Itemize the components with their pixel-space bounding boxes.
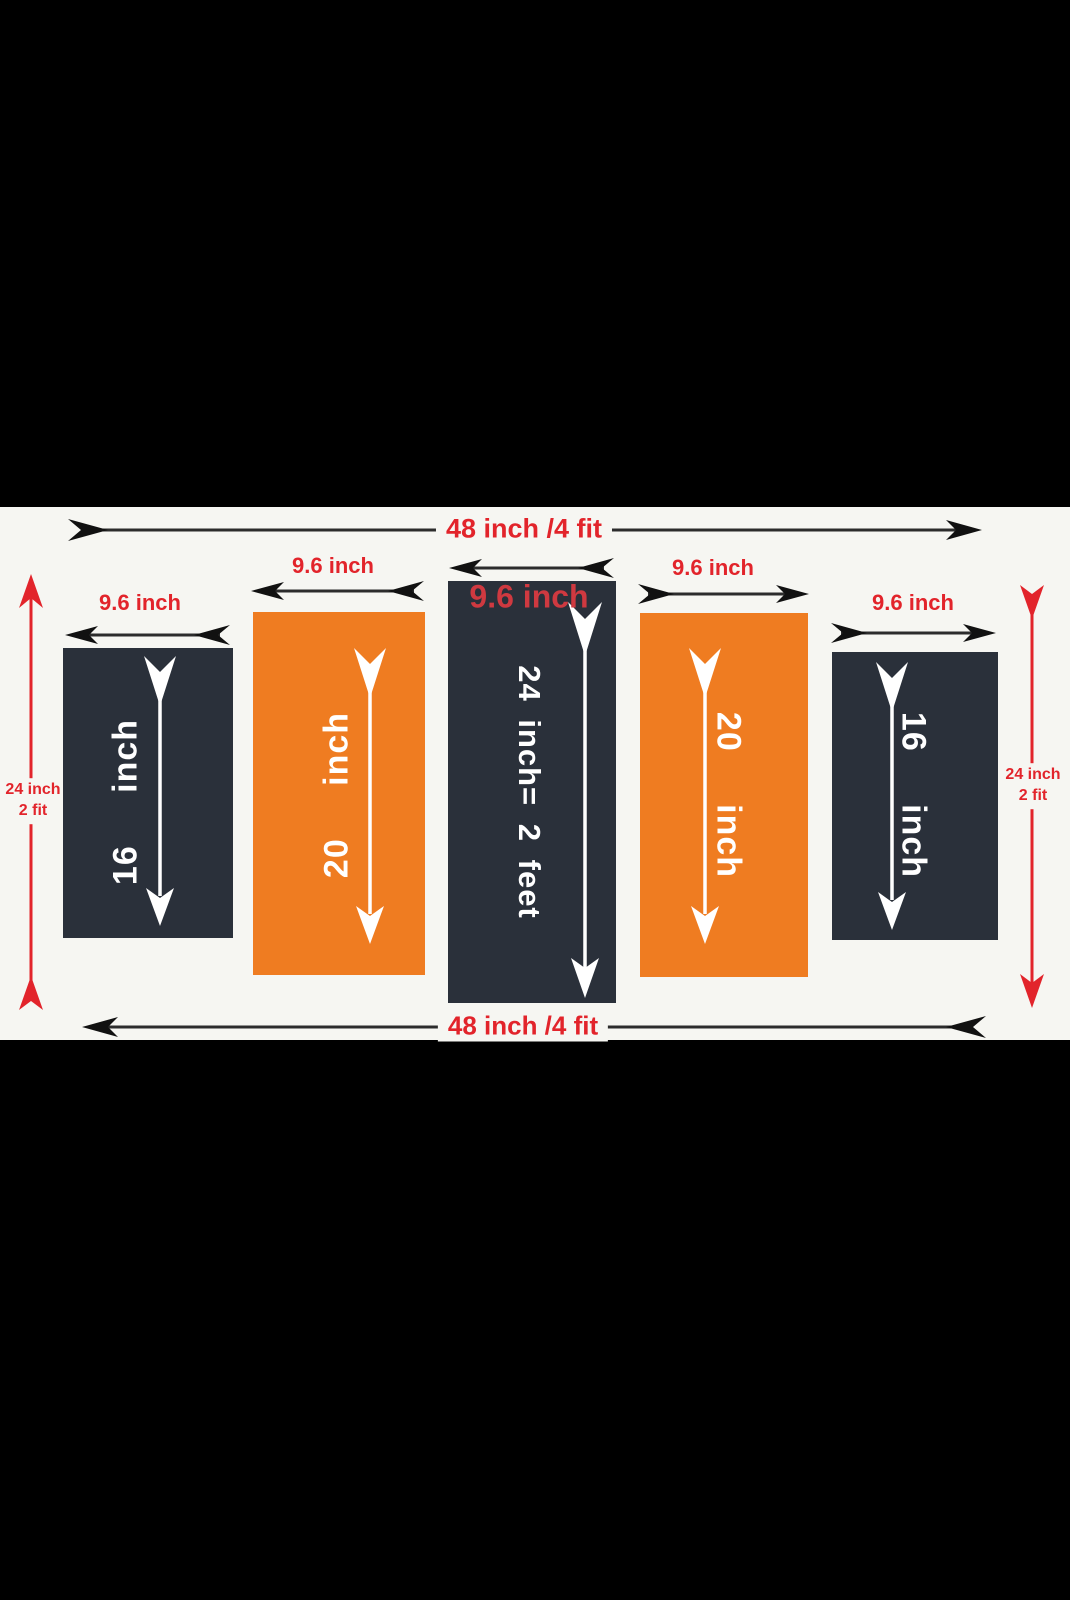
letterbox-bottom — [0, 1040, 1070, 1600]
left-height-label-line1: 24 inch — [5, 780, 60, 801]
left-height-label-line2: 2 fit — [5, 801, 60, 822]
panel-1-width-arrow-icon — [62, 623, 234, 647]
panel-2-width-arrow-icon — [248, 579, 428, 603]
panel-1-height-label: 16 inch — [107, 719, 146, 885]
panel-3-width-arrow-icon — [446, 556, 618, 580]
panel-1-down-arrow-icon — [140, 652, 180, 926]
panel-5-height-label: 16 inch — [894, 712, 933, 878]
right-height-label-line2: 2 fit — [1005, 786, 1060, 807]
panel-1-width-label: 9.6 inch — [99, 590, 181, 616]
panel-3-height-label: 24 inch= 2 feet — [511, 665, 547, 919]
panel-3-width-label: 9.6 inch — [469, 579, 588, 616]
right-height-label: 24 inch 2 fit — [1003, 763, 1062, 809]
panel-3-down-arrow-icon — [565, 598, 605, 998]
bottom-width-label: 48 inch /4 fit — [438, 1011, 608, 1042]
panel-4-width-arrow-icon — [634, 582, 812, 606]
panel-2-height-label: 20 inch — [318, 712, 357, 878]
right-height-label-line1: 24 inch — [1005, 765, 1060, 786]
left-height-label: 24 inch 2 fit — [3, 778, 62, 824]
panel-4-width-label: 9.6 inch — [672, 555, 754, 581]
panel-5-width-label: 9.6 inch — [872, 590, 954, 616]
top-width-label: 48 inch /4 fit — [436, 514, 612, 545]
wall-art-size-diagram: 9.6 inch 16 inch 20 inch 24 inch= 2 feet… — [0, 0, 1070, 1600]
panel-4-height-label: 20 inch — [709, 712, 748, 878]
panel-2-width-label: 9.6 inch — [292, 553, 374, 579]
letterbox-top — [0, 0, 1070, 507]
panel-5-width-arrow-icon — [827, 621, 999, 645]
